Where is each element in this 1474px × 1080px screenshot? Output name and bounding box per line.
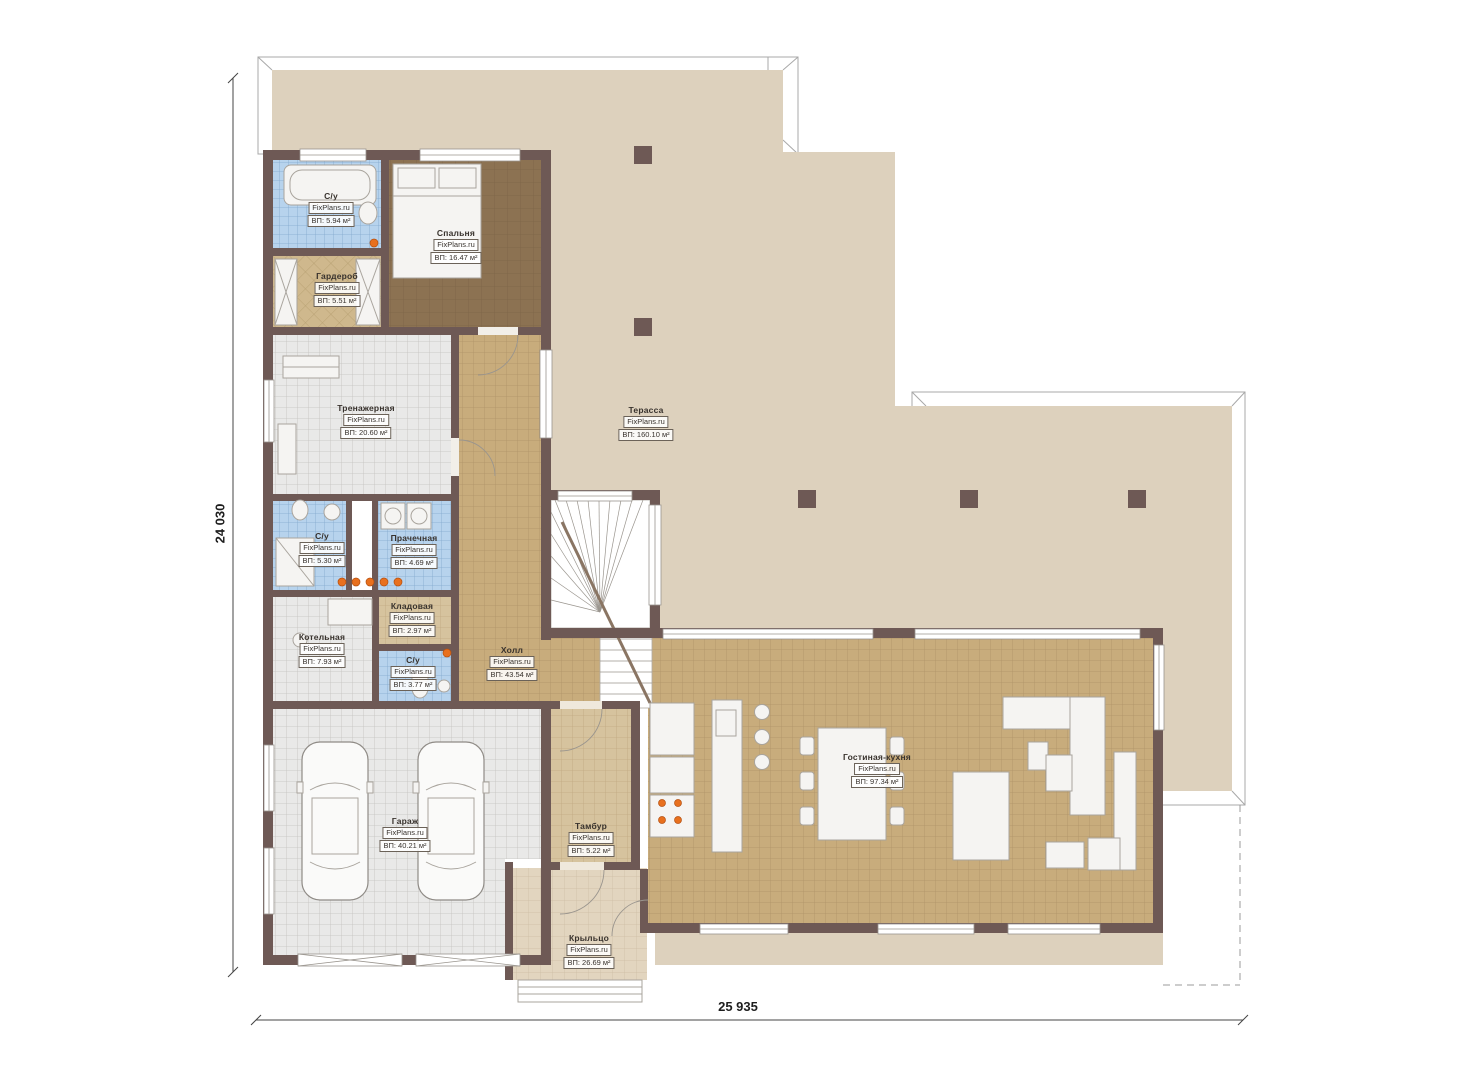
gym-equipment — [278, 424, 296, 474]
bar-stool — [755, 705, 770, 720]
coffee-table — [1046, 842, 1084, 868]
garage-door — [298, 954, 402, 966]
floor-vestibule — [551, 709, 631, 863]
bar-stool — [755, 755, 770, 770]
floor-corridor — [459, 335, 541, 701]
car — [297, 742, 373, 900]
boiler-tank — [293, 633, 307, 647]
dimension-vertical: 24 030 — [213, 482, 228, 566]
kitchen-units — [650, 703, 694, 837]
sink — [359, 202, 377, 224]
sink — [324, 504, 340, 520]
toilet — [292, 500, 308, 520]
armchair — [1088, 838, 1120, 870]
bar-stool — [755, 730, 770, 745]
sink — [438, 680, 450, 692]
floor-plan-page: 24 030 25 935 С/у FixPlans.ru ВП: 5.94 м… — [0, 0, 1474, 1080]
car — [413, 742, 489, 900]
porch-steps — [518, 980, 642, 1002]
boiler-unit — [328, 599, 372, 625]
dashed-lines — [1163, 805, 1240, 985]
bed — [393, 164, 481, 278]
floor-pantry — [379, 597, 453, 644]
dimension-horizontal: 25 935 — [693, 999, 783, 1014]
garage-door — [416, 954, 520, 966]
